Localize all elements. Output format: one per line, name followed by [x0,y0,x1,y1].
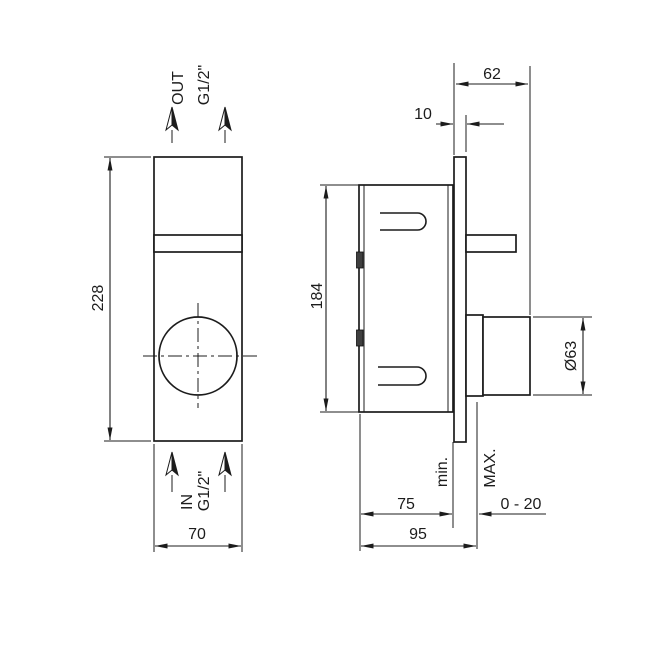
dim-63-label: Ø63 [563,341,580,371]
mounting-clip [357,252,364,268]
dimension-0-20: 0 - 20 [479,496,546,514]
dim-95-label: 95 [409,526,427,543]
dim-0-20-label: 0 - 20 [501,496,542,513]
handle-knob [483,317,530,395]
function-tab [466,235,516,252]
flow-arrow-left-half [219,452,225,475]
dim-10-label: 10 [414,106,432,123]
out-thread-label: G1/2" [196,65,213,105]
dimension-95: 95 [361,526,476,546]
front-view: OUT G1/2" IN G1/2" 228 70 [90,65,257,552]
dimension-10: 10 [414,106,504,152]
cover-plate-outline [454,157,466,442]
technical-drawing: OUT G1/2" IN G1/2" 228 70 [0,0,650,650]
front-function-band [154,235,242,252]
rough-in-body-outline [359,185,453,412]
drawing-canvas: OUT G1/2" IN G1/2" 228 70 [0,0,650,650]
flow-arrow-left-half [166,452,172,475]
dimension-184: 184 [309,185,360,412]
flow-arrow-right-half [172,452,178,475]
in-thread-label: G1/2" [196,471,213,511]
max-label: MAX. [482,448,499,487]
mounting-clip [357,330,364,346]
dim-228-label: 228 [90,285,107,312]
out-label: OUT [170,71,187,105]
flow-arrow-right-half [172,107,178,130]
handle-base-ring [466,315,483,396]
out-flow-arrows [166,107,231,143]
flow-arrow-left-half [166,107,172,130]
dimension-228: 228 [90,157,151,441]
flow-arrow-left-half [219,107,225,130]
dim-70-label: 70 [188,526,206,543]
dim-75-label: 75 [397,496,415,513]
dim-184-label: 184 [309,283,326,310]
side-view: 62 10 184 Ø63 min. MAX. [309,63,592,551]
min-label: min. [434,457,451,487]
dimension-diameter-63: Ø63 [533,317,592,395]
flow-arrow-right-half [225,107,231,130]
flow-arrow-right-half [225,452,231,475]
dim-62-label: 62 [483,66,501,83]
in-label: IN [179,494,196,510]
